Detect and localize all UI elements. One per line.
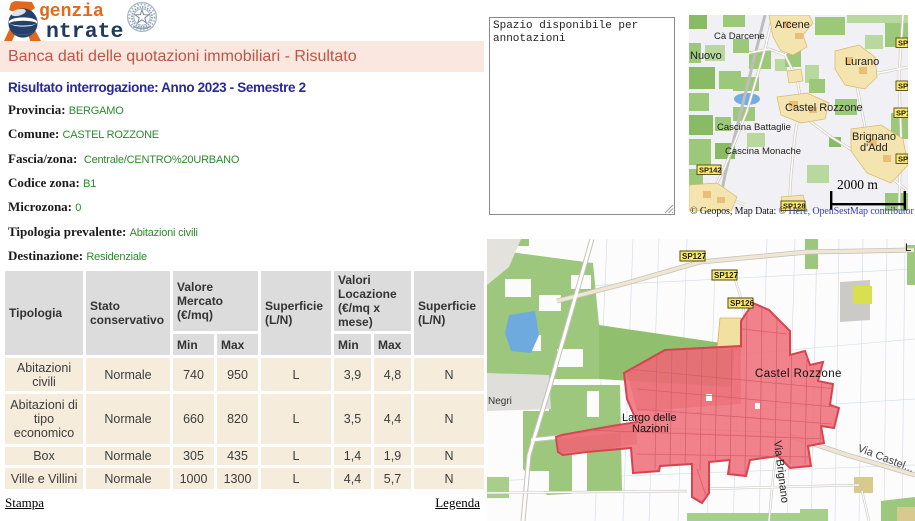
svg-text:L: L bbox=[905, 242, 911, 254]
svg-text:SP: SP bbox=[898, 155, 908, 164]
svg-text:d'Add: d'Add bbox=[860, 142, 888, 154]
svg-text:SP127: SP127 bbox=[714, 271, 739, 280]
svg-text:SP: SP bbox=[898, 82, 908, 91]
svg-text:SP127: SP127 bbox=[682, 252, 707, 261]
svg-text:SP142: SP142 bbox=[699, 166, 722, 175]
svg-text:Cascina Monache: Cascina Monache bbox=[725, 146, 801, 157]
svg-text:Castel Rozzone: Castel Rozzone bbox=[755, 368, 842, 380]
svg-text:Cascina Battaglie: Cascina Battaglie bbox=[717, 122, 791, 133]
svg-text:Nuovo: Nuovo bbox=[690, 50, 722, 62]
svg-text:Negri: Negri bbox=[488, 396, 512, 407]
svg-text:Arcene: Arcene bbox=[775, 19, 810, 31]
svg-text:SP126: SP126 bbox=[730, 299, 755, 308]
svg-text:SP: SP bbox=[898, 39, 908, 48]
svg-text:Lurano: Lurano bbox=[845, 56, 879, 68]
svg-text:SP1: SP1 bbox=[896, 109, 908, 118]
svg-text:Nazioni: Nazioni bbox=[632, 423, 669, 435]
svg-text:genzia: genzia bbox=[39, 2, 104, 22]
svg-text:Cà Darcene: Cà Darcene bbox=[714, 31, 765, 42]
svg-text:2000 m: 2000 m bbox=[837, 177, 878, 192]
svg-text:Castel Rozzone: Castel Rozzone bbox=[785, 102, 863, 114]
